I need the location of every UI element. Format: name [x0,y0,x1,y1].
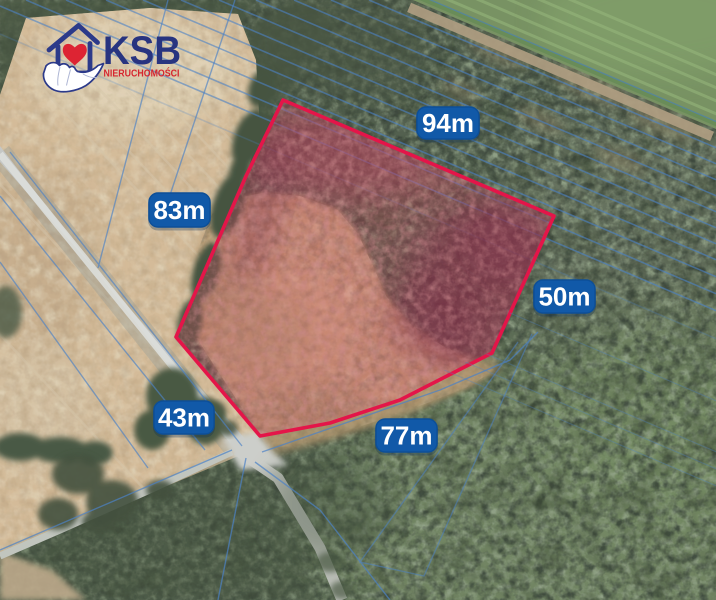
svg-text:94m: 94m [422,108,474,138]
svg-text:KSB: KSB [103,29,181,73]
svg-text:NIERUCHOMOŚCI: NIERUCHOMOŚCI [104,67,180,80]
svg-text:43m: 43m [158,403,210,433]
svg-text:83m: 83m [153,195,205,225]
svg-text:77m: 77m [380,421,432,451]
svg-text:50m: 50m [538,282,590,312]
